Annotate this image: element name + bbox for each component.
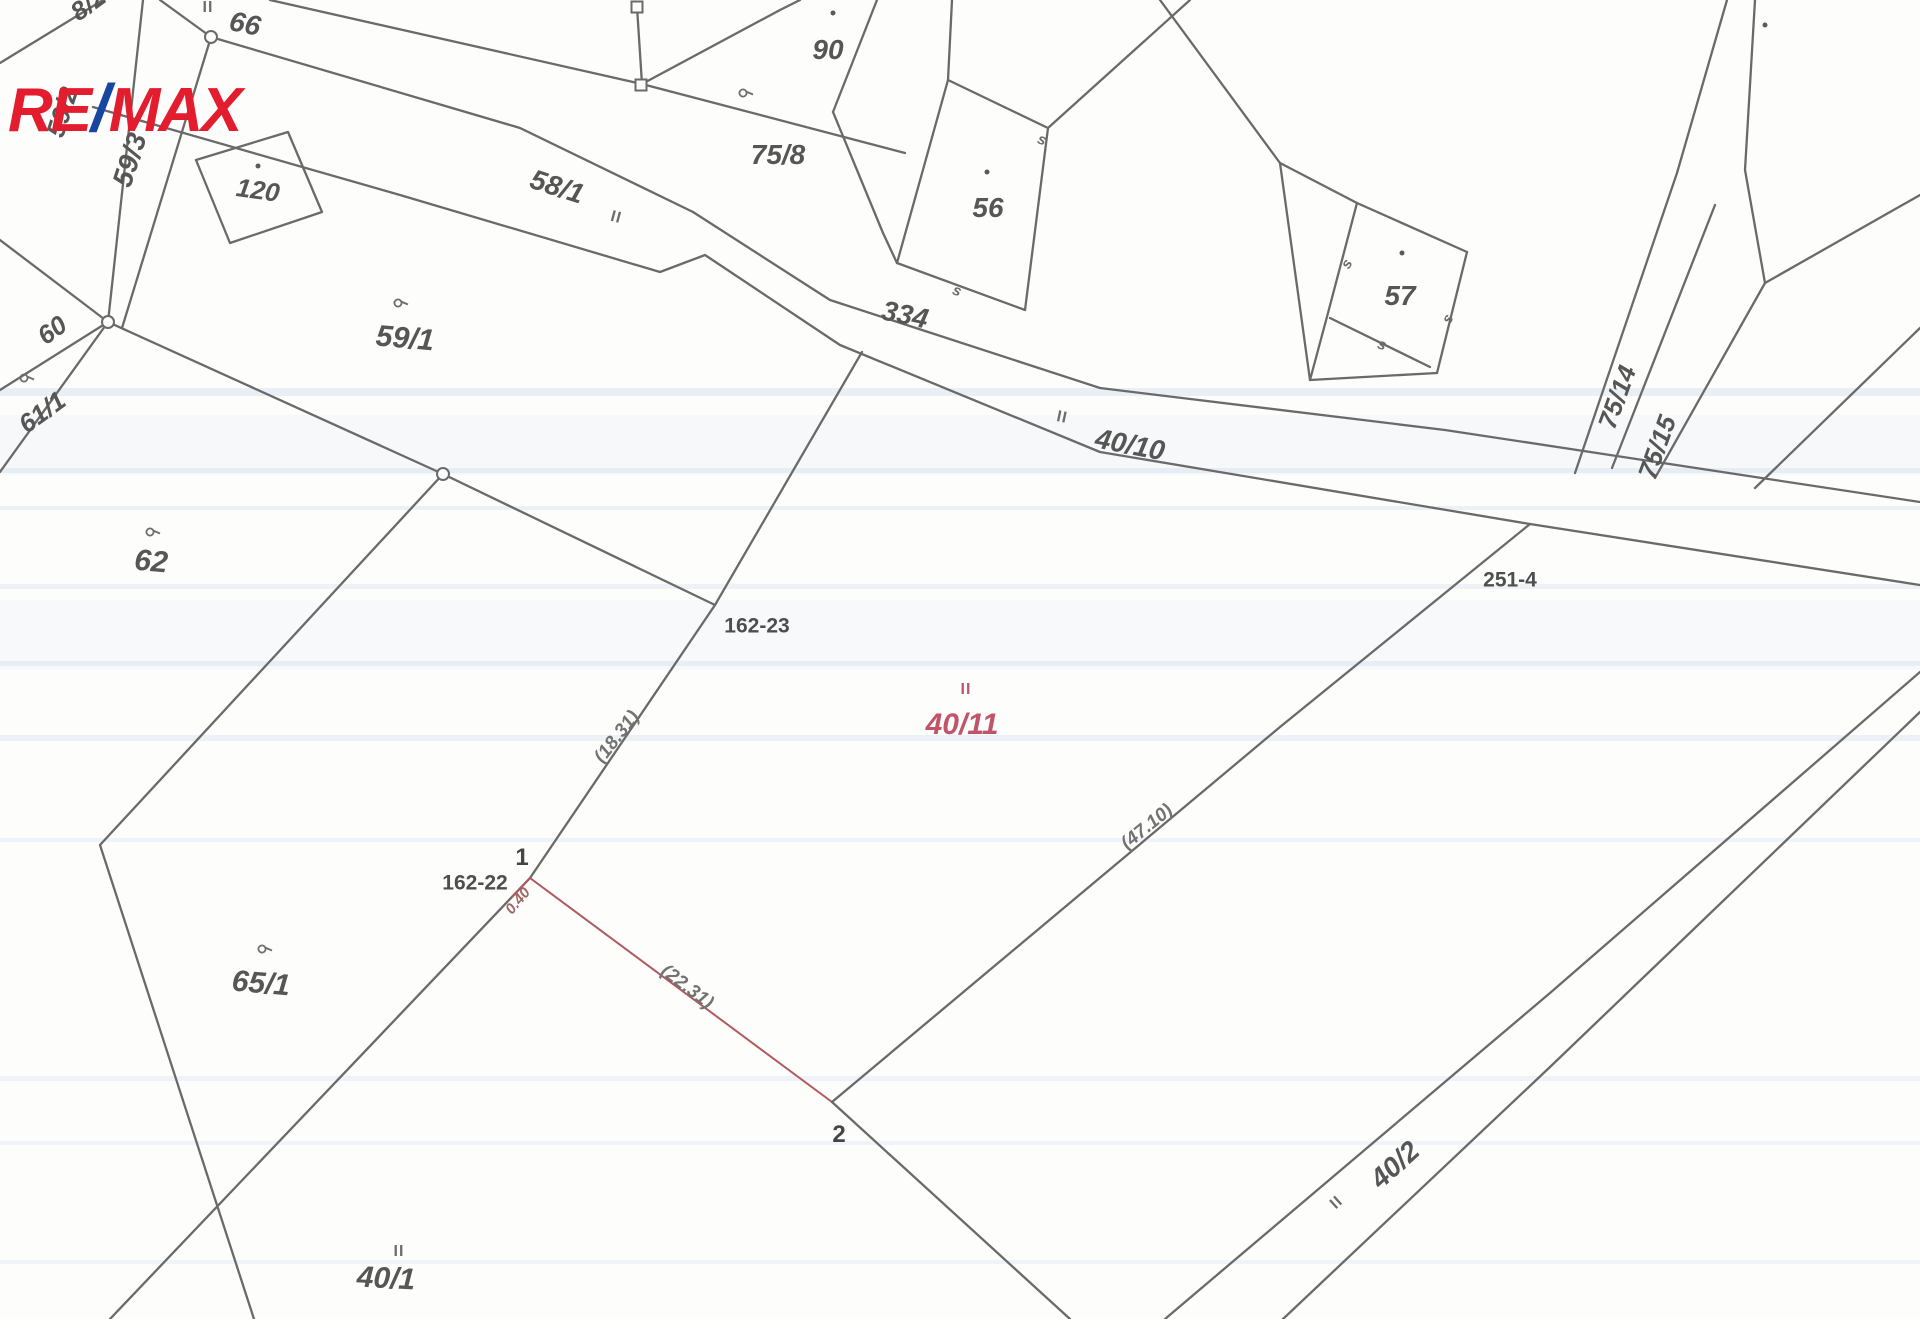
landuse-symbol xyxy=(145,525,163,543)
parcel-boundary-line xyxy=(270,0,905,153)
boundary-vertex-square xyxy=(631,1,644,14)
parcel-boundary-line xyxy=(897,80,948,263)
parcel-boundary-line xyxy=(948,80,1048,128)
parcel-number-label: 90 xyxy=(812,36,843,64)
cadastral-map: 8/26659/259/312058/19075/8565733440/1060… xyxy=(0,0,1920,1319)
parcel-boundary-line xyxy=(1048,0,1190,128)
parcel-number-label: 57 xyxy=(1384,282,1415,310)
parcel-boundary-line xyxy=(1280,163,1357,203)
parcel-boundary-line xyxy=(1310,373,1437,380)
parcel-boundary-line xyxy=(1165,672,1920,1319)
building-dot-symbol xyxy=(256,164,261,169)
parcel-boundary-line xyxy=(100,474,443,1319)
parcel-boundary-line xyxy=(1755,328,1920,488)
landuse-symbol xyxy=(19,371,37,389)
parcel-boundary-line xyxy=(1025,128,1048,310)
building-dot-symbol xyxy=(1400,251,1405,256)
survey-mark-label: 162-23 xyxy=(724,616,789,637)
parcel-number-label: 59/1 xyxy=(375,322,436,357)
parcel-boundary-line xyxy=(948,0,952,80)
landuse-symbol xyxy=(393,296,411,314)
parcel-number-label: 62 xyxy=(133,546,169,579)
remax-logo-max: MAX xyxy=(109,76,241,145)
survey-point-number: 1 xyxy=(515,846,528,870)
parcel-boundary-line xyxy=(1283,712,1920,1319)
survey-mark-label: 162-22 xyxy=(442,873,507,894)
parcel-number-label: 56 xyxy=(972,194,1003,222)
parcel-boundary-line xyxy=(642,0,800,84)
parcel-number-label: 65/1 xyxy=(231,967,292,1002)
map-lines-svg xyxy=(0,0,1920,1319)
survey-point-number: 2 xyxy=(832,1123,845,1147)
building-dot-symbol xyxy=(831,11,836,16)
building-dot-symbol xyxy=(1763,23,1768,28)
parcel-boundary-line xyxy=(443,474,715,605)
parcel-boundary-line xyxy=(833,112,897,263)
parcel-number-label: 120 xyxy=(235,174,282,206)
landuse-mark-II: II xyxy=(394,1244,405,1260)
boundary-vertex-circle xyxy=(436,467,450,481)
parcel-number-label: 66 xyxy=(227,7,263,41)
landuse-mark-II: II xyxy=(961,682,972,698)
parcel-boundary-line xyxy=(1655,0,1765,478)
remax-logo-re: RE xyxy=(8,76,90,145)
parcel-boundary-line xyxy=(1357,203,1467,252)
remax-logo-slash: / xyxy=(90,71,109,146)
landuse-symbol xyxy=(257,942,275,960)
parcel-boundary-line xyxy=(637,7,642,84)
boundary-vertex-circle xyxy=(204,30,218,44)
parcel-boundary-line xyxy=(832,1102,1070,1319)
parcel-boundary-line xyxy=(93,107,1920,585)
parcel-boundary-line xyxy=(1160,0,1280,163)
parcel-boundary-line xyxy=(715,352,862,605)
parcel-boundary-line xyxy=(832,524,1530,1102)
building-dot-symbol xyxy=(985,170,990,175)
parcel-boundary-line xyxy=(1310,203,1357,380)
parcel-number-label: 40/11 xyxy=(926,710,999,740)
survey-mark-label: 251-4 xyxy=(1483,570,1537,591)
landuse-mark-II: II xyxy=(203,0,214,16)
parcel-boundary-line xyxy=(1765,195,1920,283)
remax-logo: RE/MAX xyxy=(8,76,241,143)
parcel-boundary-line xyxy=(1575,0,1727,473)
parcel-number-label: 75/8 xyxy=(751,141,806,169)
parcel-number-label: 40/1 xyxy=(356,1262,416,1295)
parcel-boundary-line xyxy=(1280,163,1310,380)
boundary-vertex-square xyxy=(635,79,648,92)
boundary-vertex-circle xyxy=(101,315,115,329)
landuse-symbol xyxy=(738,86,756,104)
